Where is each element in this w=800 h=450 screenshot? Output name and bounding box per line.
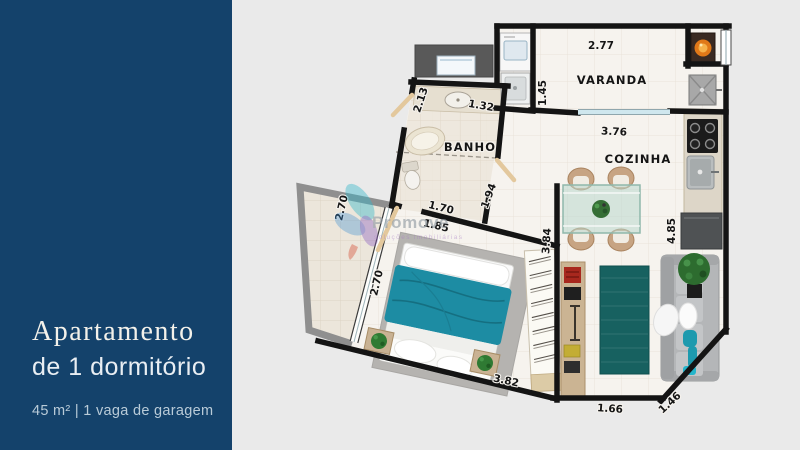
dim-kitchen-wall: 4.85 xyxy=(666,218,678,244)
watermark-brand: Promove xyxy=(372,213,449,232)
refrigerator xyxy=(681,213,722,249)
storage-box-dark xyxy=(564,361,580,373)
room-label-cozinha: COZINHA xyxy=(605,152,672,166)
room-label-varanda: VARANDA xyxy=(577,73,648,87)
table-centerpiece-plant xyxy=(592,200,610,218)
room-label-banho: BANHO xyxy=(444,140,496,154)
dim-cozinha-width: 3.76 xyxy=(601,125,628,138)
listing-title-line1: Apartamento xyxy=(32,318,213,346)
nightstand-left xyxy=(364,328,394,355)
building-hall-box xyxy=(415,45,493,77)
tv-rack xyxy=(561,262,585,398)
speaker xyxy=(564,287,581,300)
listing-title-line2: de 1 dormitório xyxy=(32,353,213,382)
cooktop xyxy=(687,119,718,153)
dim-closet-wall: 3.84 xyxy=(540,228,554,255)
dim-varanda-depth: 1.45 xyxy=(537,80,549,106)
dim-living-bottom: 1.66 xyxy=(597,402,624,416)
bathroom-sink-drain xyxy=(456,98,459,101)
sliding-glass-door xyxy=(578,110,670,115)
kitchen xyxy=(681,114,722,249)
listing-info: Apartamento de 1 dormitório 45 m² | 1 va… xyxy=(32,318,213,419)
water-heater xyxy=(691,33,715,64)
dim-varanda-width: 2.77 xyxy=(588,40,614,52)
listing-subtitle: 45 m² | 1 vaga de garagem xyxy=(32,403,213,419)
kitchen-sink xyxy=(687,156,719,189)
storage-box-yellow xyxy=(564,345,580,357)
sidebar: Apartamento de 1 dormitório 45 m² | 1 va… xyxy=(0,0,232,450)
watermark-tagline: soluções imobiliárias xyxy=(374,234,463,241)
real-estate-card: VARANDA BANHO COZINHA 2.77 1.45 2.13 1.3… xyxy=(0,0,800,450)
tv-equipment xyxy=(564,267,581,283)
facade-window xyxy=(721,30,731,65)
washing-machine xyxy=(500,33,531,71)
